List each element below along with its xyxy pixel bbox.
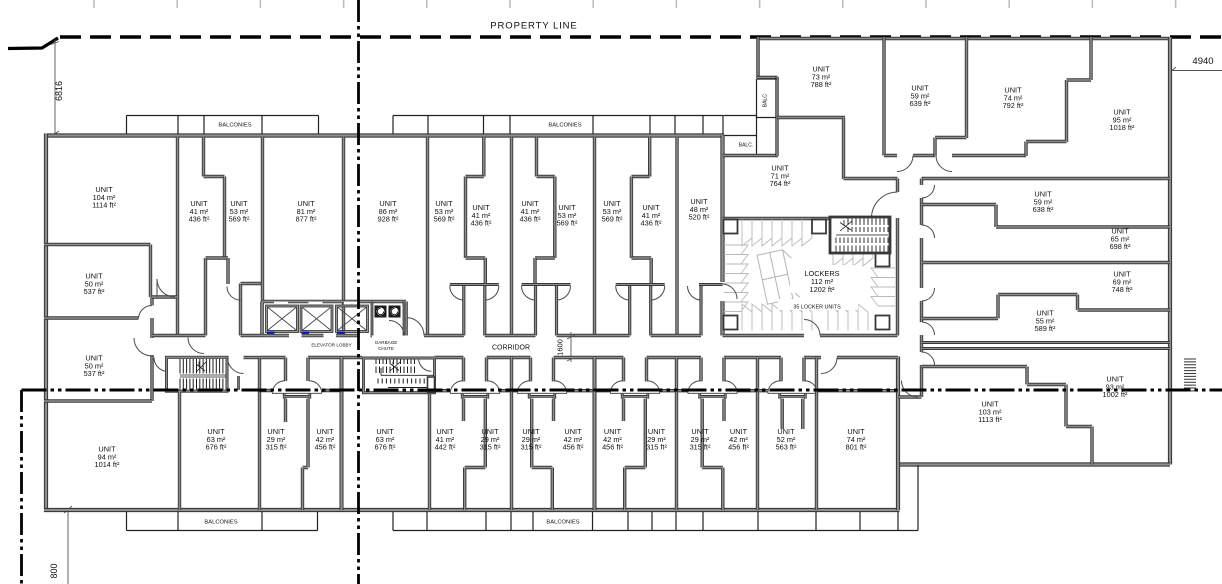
svg-text:BALCONIES: BALCONIES <box>218 123 251 129</box>
svg-text:1114 ft²: 1114 ft² <box>92 201 116 210</box>
svg-text:6816: 6816 <box>54 81 64 101</box>
svg-text:GARBAGE: GARBAGE <box>375 340 398 345</box>
svg-text:676 ft²: 676 ft² <box>375 443 396 452</box>
svg-text:CHUTE: CHUTE <box>378 346 394 351</box>
svg-text:1202 ft²: 1202 ft² <box>810 285 835 294</box>
svg-text:1113 ft²: 1113 ft² <box>978 415 1002 424</box>
svg-text:BALCONIES: BALCONIES <box>548 123 581 129</box>
svg-text:315 ft²: 315 ft² <box>690 443 711 452</box>
svg-text:315 ft²: 315 ft² <box>646 443 667 452</box>
svg-text:1600: 1600 <box>556 339 565 356</box>
svg-text:456 ft²: 456 ft² <box>563 443 584 452</box>
svg-text:801 ft²: 801 ft² <box>846 443 867 452</box>
svg-text:BALC.: BALC. <box>739 143 753 149</box>
svg-text:569 ft²: 569 ft² <box>229 215 250 224</box>
svg-text:788 ft²: 788 ft² <box>811 80 832 89</box>
svg-text:ELEVATOR LOBBY: ELEVATOR LOBBY <box>311 342 351 347</box>
svg-text:569 ft²: 569 ft² <box>434 215 455 224</box>
svg-text:1014 ft²: 1014 ft² <box>95 460 120 469</box>
svg-text:792 ft²: 792 ft² <box>1003 101 1024 110</box>
svg-text:520 ft²: 520 ft² <box>689 213 710 222</box>
svg-text:BALC.: BALC. <box>763 93 769 107</box>
svg-text:456 ft²: 456 ft² <box>602 443 623 452</box>
svg-text:877 ft²: 877 ft² <box>296 215 317 224</box>
svg-text:442 ft²: 442 ft² <box>435 443 456 452</box>
svg-text:456 ft²: 456 ft² <box>728 443 749 452</box>
svg-text:537 ft²: 537 ft² <box>84 287 105 296</box>
svg-text:800: 800 <box>49 563 59 578</box>
svg-text:589 ft²: 589 ft² <box>1035 324 1056 333</box>
svg-text:436 ft²: 436 ft² <box>520 215 541 224</box>
svg-text:315 ft²: 315 ft² <box>266 443 287 452</box>
svg-text:315 ft²: 315 ft² <box>480 443 501 452</box>
svg-text:639 ft²: 639 ft² <box>910 99 931 108</box>
svg-text:315 ft²: 315 ft² <box>521 443 542 452</box>
svg-text:456 ft²: 456 ft² <box>315 443 336 452</box>
svg-text:4940: 4940 <box>1192 56 1213 67</box>
svg-text:BALCONIES: BALCONIES <box>204 520 237 526</box>
svg-text:436 ft²: 436 ft² <box>189 215 210 224</box>
svg-text:928 ft²: 928 ft² <box>378 215 399 224</box>
svg-text:764 ft²: 764 ft² <box>770 179 791 188</box>
svg-text:537 ft²: 537 ft² <box>84 369 105 378</box>
svg-text:BALCONIES: BALCONIES <box>546 520 579 526</box>
svg-text:698 ft²: 698 ft² <box>1110 242 1131 251</box>
svg-text:35 LOCKER UNITS: 35 LOCKER UNITS <box>793 305 841 311</box>
svg-text:569 ft²: 569 ft² <box>602 215 623 224</box>
svg-text:436 ft²: 436 ft² <box>471 219 492 228</box>
svg-text:638 ft²: 638 ft² <box>1033 205 1054 214</box>
svg-text:1018 ft²: 1018 ft² <box>1110 123 1135 132</box>
svg-text:PROPERTY LINE: PROPERTY LINE <box>490 21 577 32</box>
svg-text:748 ft²: 748 ft² <box>1112 285 1133 294</box>
svg-text:563 ft²: 563 ft² <box>776 443 797 452</box>
svg-text:CORRIDOR: CORRIDOR <box>492 345 530 352</box>
svg-text:676 ft²: 676 ft² <box>206 443 227 452</box>
svg-text:436 ft²: 436 ft² <box>641 219 662 228</box>
svg-text:569 ft²: 569 ft² <box>557 219 578 228</box>
